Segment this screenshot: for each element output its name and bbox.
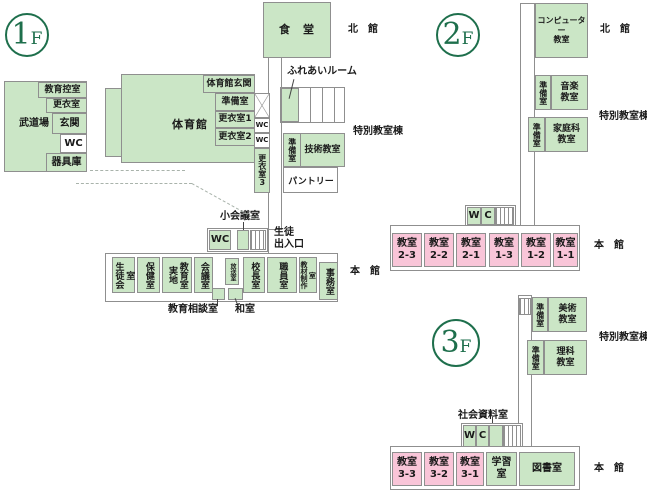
room-science-junbishitsu: 準備室 xyxy=(527,340,544,375)
room-wc-budokan: WC xyxy=(60,134,87,153)
room-tech-classroom: 技術教室 xyxy=(300,133,345,167)
stairs-hatch-1f xyxy=(250,230,266,250)
label-north-building-2f: 北 館 xyxy=(594,24,636,36)
room-koishitsu-1: 更衣室1 xyxy=(215,111,255,128)
corridor-1f xyxy=(268,57,282,230)
label-special-wing-3f: 特別教室棟 xyxy=(596,332,647,344)
pointer-small-meeting xyxy=(243,222,244,230)
label-small-meeting: 小会議室 xyxy=(215,211,265,223)
room-kyoiku-hikaeshitsu: 教育控室 xyxy=(38,82,87,98)
walkway-dashed xyxy=(76,183,192,184)
label-main-wing-3f: 本 館 xyxy=(588,463,630,475)
label-main-wing-1f: 本 館 xyxy=(344,266,386,278)
stairs-hatch-3f xyxy=(503,425,521,447)
walkway-dashed xyxy=(90,170,185,171)
room-kocho: 校長室 xyxy=(243,257,265,293)
label-special-wing-2f: 特別教室棟 xyxy=(596,111,647,123)
room-seitokai: 生徒会室 xyxy=(112,257,135,293)
room-classroom-1-2: 教室 1-2 xyxy=(521,233,551,267)
label-fureai-room: ふれあいルーム xyxy=(286,66,358,78)
room-jimu: 事務室 xyxy=(319,262,338,300)
room-gakushushitsu: 学習室 xyxy=(486,452,517,486)
label-gym: 体育館 xyxy=(158,118,222,131)
label-shakai-shiryoshitsu: 社会資料室 xyxy=(455,410,511,422)
floor-badge-2f-label: 2F xyxy=(443,20,474,50)
room-wc-c-2f: C xyxy=(481,207,495,225)
room-gym-entrance: 体育館玄関 xyxy=(203,75,255,93)
room-genkan: 玄関 xyxy=(52,113,87,134)
room-kyozai-seisaku: 教材制作室 xyxy=(299,257,317,293)
room-music: 音楽 教室 xyxy=(551,75,588,110)
room-music-junbishitsu: 準備室 xyxy=(535,75,551,110)
room-jicchi-kyoiku: 実地 教育室 xyxy=(162,257,192,293)
room-koishitsu-2: 更衣室2 xyxy=(215,128,255,146)
room-wc-east-lower: WC xyxy=(254,133,270,148)
room-wc-c-3f: C xyxy=(476,425,489,447)
room-shokuin: 職員室 xyxy=(267,257,297,293)
room-computer: コンピューター 教室 xyxy=(535,3,588,58)
stairwell-x-icon xyxy=(254,93,270,118)
room-toshoshitsu: 図書室 xyxy=(519,452,575,486)
floor-badge-1f-label: 1F xyxy=(12,20,43,50)
room-wc-w-2f: W xyxy=(467,207,481,225)
school-floor-map: 1F 食 堂 北 館 教育控室 更衣室 玄関 WC 器具庫 武道場 体育館 体育… xyxy=(0,0,647,491)
room-wc-main-1f: WC xyxy=(209,230,231,250)
room-classroom-2-2: 教室 2-2 xyxy=(424,233,454,267)
label-washitsu: 和室 xyxy=(230,304,260,316)
floor-badge-1f: 1F xyxy=(5,13,49,57)
room-hoken: 保健室 xyxy=(137,257,160,293)
divider xyxy=(322,88,323,122)
label-pantry: パントリー xyxy=(285,177,337,188)
room-shakai-shiryoshitsu xyxy=(489,425,503,447)
room-art: 美術 教室 xyxy=(548,297,587,332)
room-tech-junbishitsu: 準備室 xyxy=(283,133,301,167)
room-classroom-1-1: 教室 1-1 xyxy=(553,233,578,267)
label-student-entrance: 生徒 出入口 xyxy=(274,227,314,251)
room-homeec-junbishitsu: 準備室 xyxy=(528,117,545,152)
room-koishitsu-3: 更衣室3 xyxy=(254,148,270,193)
label-kyoiku-sodan: 教育相談室 xyxy=(160,304,226,316)
room-classroom-2-1: 教室 2-1 xyxy=(456,233,486,267)
room-small-meeting xyxy=(237,230,249,250)
label-budojo: 武道場 xyxy=(14,118,54,130)
room-classroom-3-3: 教室 3-3 xyxy=(392,452,422,486)
label-north-building-1f: 北 館 xyxy=(342,24,384,36)
room-koishitsu-budokan: 更衣室 xyxy=(46,98,87,113)
room-wc-w-3f: W xyxy=(463,425,476,447)
floor-badge-3f-label: 3F xyxy=(441,328,472,358)
room-wc-east-upper: WC xyxy=(254,118,270,133)
room-classroom-3-2: 教室 3-2 xyxy=(424,452,454,486)
room-gym-junbishitsu: 準備室 xyxy=(215,93,255,111)
room-science: 理科 教室 xyxy=(544,340,587,375)
room-kaigi: 会議室 xyxy=(194,257,213,293)
room-dining-hall: 食 堂 xyxy=(263,2,331,58)
floor-badge-3f: 3F xyxy=(432,319,480,367)
room-classroom-2-3: 教室 2-3 xyxy=(392,233,422,267)
stairs-hatch-2f xyxy=(495,207,514,225)
room-kyoiku-sodan xyxy=(212,288,225,300)
room-hoso: 放送室 xyxy=(225,258,239,285)
stairs-hatch-3f-top xyxy=(519,298,531,315)
room-home-economics: 家庭科 教室 xyxy=(545,117,588,152)
label-main-wing-2f: 本 館 xyxy=(588,240,630,252)
divider xyxy=(310,88,311,122)
floor-badge-2f: 2F xyxy=(436,13,480,57)
divider xyxy=(334,88,335,122)
room-kiguko: 器具庫 xyxy=(46,153,87,172)
room-classroom-1-3: 教室 1-3 xyxy=(489,233,519,267)
label-special-wing-1f: 特別教室棟 xyxy=(350,126,406,138)
room-art-junbishitsu: 準備室 xyxy=(532,297,548,332)
room-classroom-3-1: 教室 3-1 xyxy=(456,452,484,486)
divider xyxy=(268,228,269,253)
